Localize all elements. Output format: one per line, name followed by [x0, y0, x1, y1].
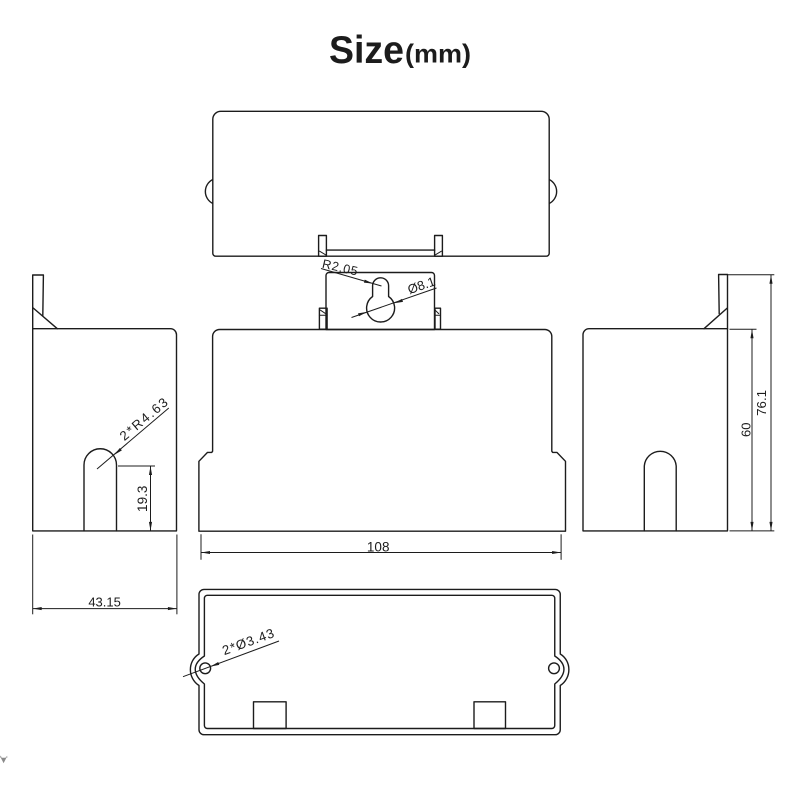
svg-text:76.1: 76.1	[754, 390, 769, 416]
svg-text:2*R4.63: 2*R4.63	[117, 395, 171, 444]
svg-text:43.15: 43.15	[88, 594, 121, 609]
svg-text:19.3: 19.3	[135, 486, 150, 512]
svg-text:108: 108	[367, 539, 390, 554]
svg-text:60: 60	[739, 423, 754, 437]
svg-text:(mm): (mm)	[405, 39, 471, 69]
svg-text:Size: Size	[329, 29, 404, 72]
svg-text:2*Ø3.43: 2*Ø3.43	[220, 625, 276, 658]
